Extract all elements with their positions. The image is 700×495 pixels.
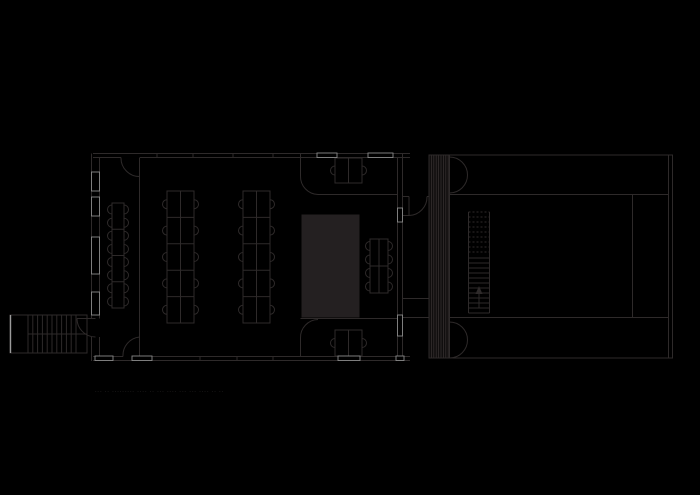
chair-icon: [194, 200, 199, 209]
chair-icon: [270, 226, 275, 235]
chair-icon: [362, 339, 367, 348]
chair-icon: [124, 297, 129, 306]
chair-icon: [124, 258, 129, 267]
window-slot: [92, 197, 100, 216]
chair-icon: [108, 218, 113, 227]
chair-icon: [388, 282, 392, 291]
chair-icon: [270, 200, 275, 209]
window-slot: [396, 356, 404, 361]
chair-icon: [194, 226, 199, 235]
window-slot: [398, 208, 403, 222]
chair-icon: [163, 279, 168, 288]
chair-icon: [366, 269, 371, 278]
plan-caption: --- -- --------- ---- -- --- ---- --- --…: [95, 388, 224, 393]
arrow-head-icon: [476, 286, 483, 294]
window-slot: [95, 356, 113, 361]
chair-icon: [108, 245, 113, 254]
chair-icon: [108, 205, 113, 214]
stair-direction-arrow: [476, 286, 483, 294]
door-arc: [300, 320, 318, 339]
connector-hatch-band: [429, 155, 450, 358]
chair-icon: [108, 231, 113, 240]
chair-icon: [108, 297, 113, 306]
window-slot: [92, 172, 100, 191]
door-arc: [300, 176, 318, 195]
window-slot: [398, 315, 403, 336]
door-arc: [450, 340, 468, 358]
chair-icon: [163, 226, 168, 235]
door-arc: [450, 175, 468, 193]
chair-icon: [270, 305, 275, 314]
chair-icon: [194, 305, 199, 314]
chair-icon: [239, 200, 244, 209]
door-arc: [121, 158, 140, 177]
chair-icon: [388, 255, 393, 264]
chair-icon: [124, 231, 129, 240]
chair-icon: [239, 253, 244, 262]
chair-icon: [239, 279, 244, 288]
chair-icon: [194, 279, 199, 288]
chair-icon: [239, 226, 244, 235]
chair-icon: [270, 253, 275, 262]
chair-icon: [194, 253, 199, 262]
chair-icon: [108, 258, 113, 267]
chair-icon: [239, 305, 244, 314]
chair-icon: [108, 284, 113, 293]
door-arcs: [77, 157, 468, 358]
hatch-fill: [429, 155, 450, 358]
door-arc: [123, 337, 140, 357]
plan-layers: [10, 153, 673, 361]
service-core: [302, 215, 359, 317]
chair-icon: [366, 242, 371, 251]
floor-plan: --- -- --------- ---- -- --- ---- --- --…: [0, 0, 700, 495]
door-arc: [409, 197, 427, 216]
window-slot: [132, 356, 152, 361]
window-slot: [92, 237, 100, 274]
chair-icon: [388, 269, 393, 278]
chair-icon: [366, 282, 370, 291]
chair-icon: [124, 218, 129, 227]
window-slot: [338, 356, 360, 361]
chair-icon: [331, 166, 336, 175]
window-slot: [92, 292, 100, 315]
chair-icon: [270, 279, 275, 288]
chair-icon: [108, 271, 113, 280]
door-arc: [450, 157, 468, 175]
chair-icon: [163, 253, 168, 262]
chair-icon: [163, 200, 168, 209]
chair-icon: [124, 271, 129, 280]
chair-icon: [124, 284, 129, 293]
window-slot: [317, 153, 337, 158]
chair-icon: [163, 305, 168, 314]
chair-icon: [366, 255, 371, 264]
chair-icon: [124, 205, 129, 214]
chair-icon: [331, 339, 336, 348]
floor-plan-svg: --- -- --------- ---- -- --- ---- --- --…: [0, 0, 700, 495]
chair-icon: [362, 166, 367, 175]
door-arc: [450, 322, 468, 340]
core-block: [302, 215, 359, 317]
chair-icon: [124, 245, 129, 254]
window-slot: [368, 153, 393, 158]
chair-icon: [388, 242, 393, 251]
outline-rect: [429, 155, 673, 358]
stair-dashed-treads: [469, 212, 490, 252]
